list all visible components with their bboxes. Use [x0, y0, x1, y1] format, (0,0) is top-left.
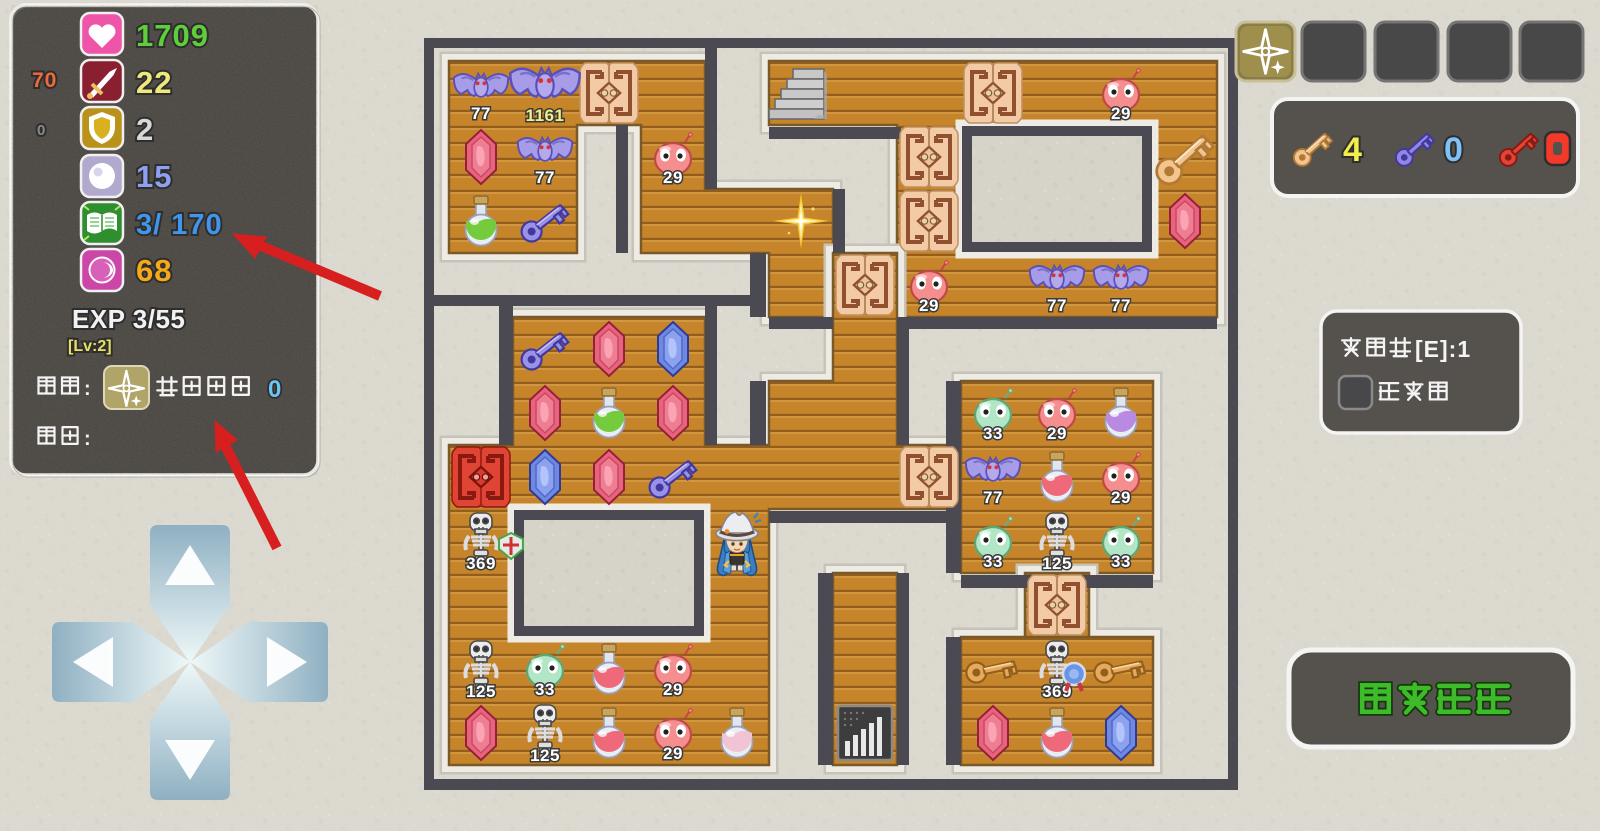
svg-text:3/ 170: 3/ 170	[136, 209, 223, 241]
svg-text:29: 29	[663, 680, 683, 699]
svg-text:4: 4	[1343, 131, 1362, 169]
svg-text:0: 0	[37, 122, 46, 139]
svg-text:15: 15	[136, 159, 172, 194]
svg-text::: :	[84, 428, 91, 450]
svg-text:33: 33	[983, 424, 1003, 443]
svg-text:0: 0	[268, 376, 281, 403]
svg-text:77: 77	[983, 488, 1003, 507]
svg-text:77: 77	[471, 104, 491, 123]
svg-text:29: 29	[919, 296, 939, 315]
svg-text:70: 70	[32, 69, 57, 92]
svg-text:125: 125	[1042, 554, 1072, 573]
svg-text:[Lv:2]: [Lv:2]	[68, 338, 112, 355]
svg-text:29: 29	[663, 744, 683, 763]
svg-text:29: 29	[1047, 424, 1067, 443]
svg-text:1709: 1709	[136, 18, 209, 53]
svg-text:[E]:1: [E]:1	[1415, 336, 1471, 362]
svg-text:EXP 3/55: EXP 3/55	[72, 304, 185, 334]
svg-text:2: 2	[136, 112, 154, 147]
svg-text:1161: 1161	[526, 106, 565, 125]
svg-text:77: 77	[1111, 296, 1131, 315]
svg-text:369: 369	[466, 554, 496, 573]
svg-text:77: 77	[1047, 296, 1067, 315]
svg-text:33: 33	[983, 552, 1003, 571]
svg-text:125: 125	[530, 746, 560, 765]
svg-text:29: 29	[1111, 488, 1131, 507]
svg-text:77: 77	[535, 168, 555, 187]
svg-text::: :	[84, 378, 91, 400]
svg-text:22: 22	[136, 65, 172, 100]
svg-text:29: 29	[663, 168, 683, 187]
svg-text:125: 125	[466, 682, 496, 701]
svg-text:29: 29	[1111, 104, 1131, 123]
svg-text:33: 33	[1111, 552, 1131, 571]
svg-text:0: 0	[1444, 131, 1463, 169]
svg-text:68: 68	[136, 253, 172, 288]
svg-text:33: 33	[535, 680, 555, 699]
